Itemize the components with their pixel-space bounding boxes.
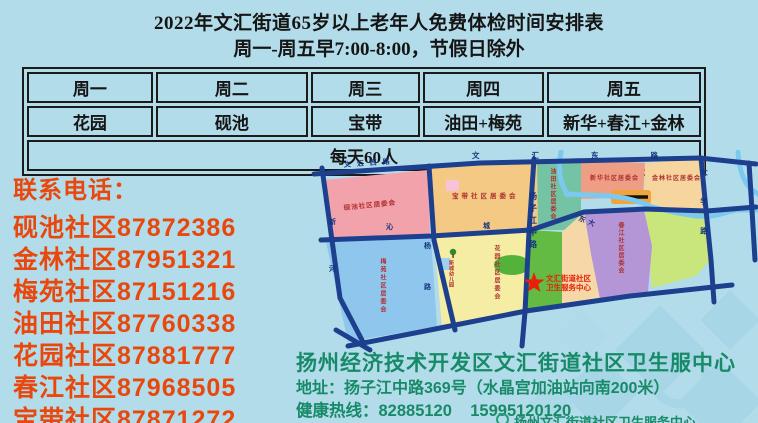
road-label-qin: 沁 <box>386 222 393 231</box>
contact-line-youtian: 油田社区87760338 <box>13 308 303 340</box>
clinic-footer-partial: 扬州文汇街道社区卫生服务中心 <box>496 412 758 423</box>
road-label-yanglu: 杨路 <box>423 241 431 324</box>
header-monday: 周一 <box>27 72 153 103</box>
marker-label-line2: 卫生服务中心 <box>546 282 591 292</box>
clinic-footer-text: 扬州文汇街道社区卫生服务中心 <box>514 412 696 423</box>
contact-list: 联系电话： 砚池社区87872386 金林社区87951321 梅苑社区8715… <box>13 170 303 423</box>
cell-thursday-community: 油田+梅苑 <box>423 106 544 137</box>
contact-line-chunjiang: 春江社区87968505 <box>13 372 303 404</box>
region-jinlin <box>644 158 708 212</box>
pink-block <box>446 180 459 191</box>
table-header-row: 周一 周二 周三 周四 周五 <box>27 72 701 103</box>
cell-friday-community: 新华+春江+金林 <box>547 106 701 137</box>
clinic-address: 地址：扬子江中路369号（水晶宫加油站向南200米） <box>296 374 758 398</box>
road-label-cheng: 城 <box>483 221 490 230</box>
contact-line-yanchi: 砚池社区87872386 <box>13 212 303 244</box>
clinic-name: 扬州经济技术开发区文汇街道社区卫生服中心 <box>296 347 758 377</box>
poster-page: 2022年文汇街道65岁以上老年人免费体检时间安排表 周一-周五早7:00-8:… <box>0 0 758 423</box>
label-kindergarten: 新城幼儿园 <box>448 259 455 288</box>
header-friday: 周五 <box>547 72 701 103</box>
header-wednesday: 周三 <box>311 72 420 103</box>
road-label-wenhui-east: 文汇东路 <box>472 150 710 160</box>
road-label-yangzijiang: 扬子江中路 <box>528 191 538 252</box>
clinic-logo-icon <box>496 413 509 423</box>
label-jinlin: 金林社区居委会 <box>651 174 701 182</box>
cell-monday-community: 花园 <box>27 106 153 137</box>
page-title: 2022年文汇街道65岁以上老年人免费体检时间安排表 <box>0 8 758 35</box>
table-community-row: 花园 砚池 宝带 油田+梅苑 新华+春江+金林 <box>27 106 701 137</box>
contact-line-jinlin: 金林社区87951321 <box>13 244 303 276</box>
cell-tuesday-community: 砚池 <box>156 106 308 137</box>
cell-wednesday-community: 宝带 <box>311 106 420 137</box>
contact-line-huayuan: 花园社区87881777 <box>13 340 303 372</box>
contact-heading: 联系电话： <box>13 170 303 205</box>
marker-label-line1: 文汇街道社区 <box>546 273 591 283</box>
page-subtitle: 周一-周五早7:00-8:00，节假日除外 <box>0 34 758 61</box>
header-tuesday: 周二 <box>156 72 308 103</box>
road-label-xinhe: 新河 <box>329 217 337 312</box>
label-baodai: 宝带社区居委会 <box>452 191 519 200</box>
road-far-right <box>749 163 755 260</box>
contact-line-meiyuan: 梅苑社区87151216 <box>13 276 303 308</box>
contact-line-baodai: 宝带社区87871272 <box>13 404 303 423</box>
label-xinhua: 新华社区居委会 <box>590 174 639 182</box>
header-thursday: 周四 <box>423 72 544 103</box>
